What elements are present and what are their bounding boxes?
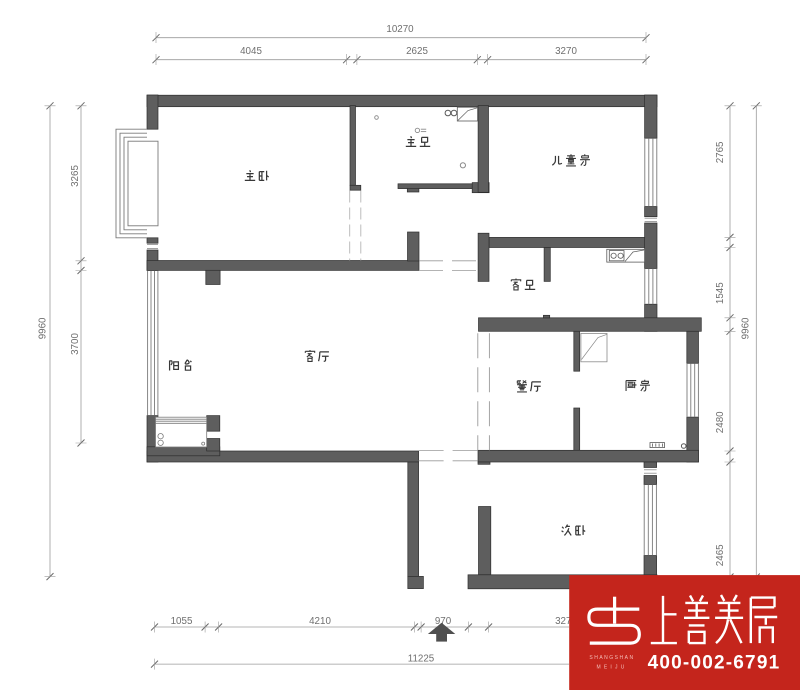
svg-text:10270: 10270	[386, 24, 414, 35]
svg-text:1055: 1055	[171, 616, 193, 627]
svg-text:2465: 2465	[715, 544, 726, 566]
svg-text:SHANGSHAN: SHANGSHAN	[589, 655, 634, 661]
svg-text:1545: 1545	[715, 282, 726, 304]
svg-text:11225: 11225	[408, 653, 435, 664]
svg-text:3700: 3700	[70, 333, 81, 355]
svg-text:3265: 3265	[70, 165, 81, 187]
svg-text:4210: 4210	[309, 616, 331, 627]
svg-text:2625: 2625	[406, 46, 428, 57]
svg-text:2765: 2765	[715, 141, 726, 163]
svg-text:2480: 2480	[715, 411, 726, 433]
svg-text:400-002-6791: 400-002-6791	[648, 653, 781, 674]
svg-text:MEIJU: MEIJU	[597, 665, 628, 671]
svg-text:3270: 3270	[555, 46, 577, 57]
svg-text:9960: 9960	[37, 317, 48, 339]
svg-text:4045: 4045	[240, 46, 262, 57]
svg-text:9960: 9960	[741, 317, 752, 339]
